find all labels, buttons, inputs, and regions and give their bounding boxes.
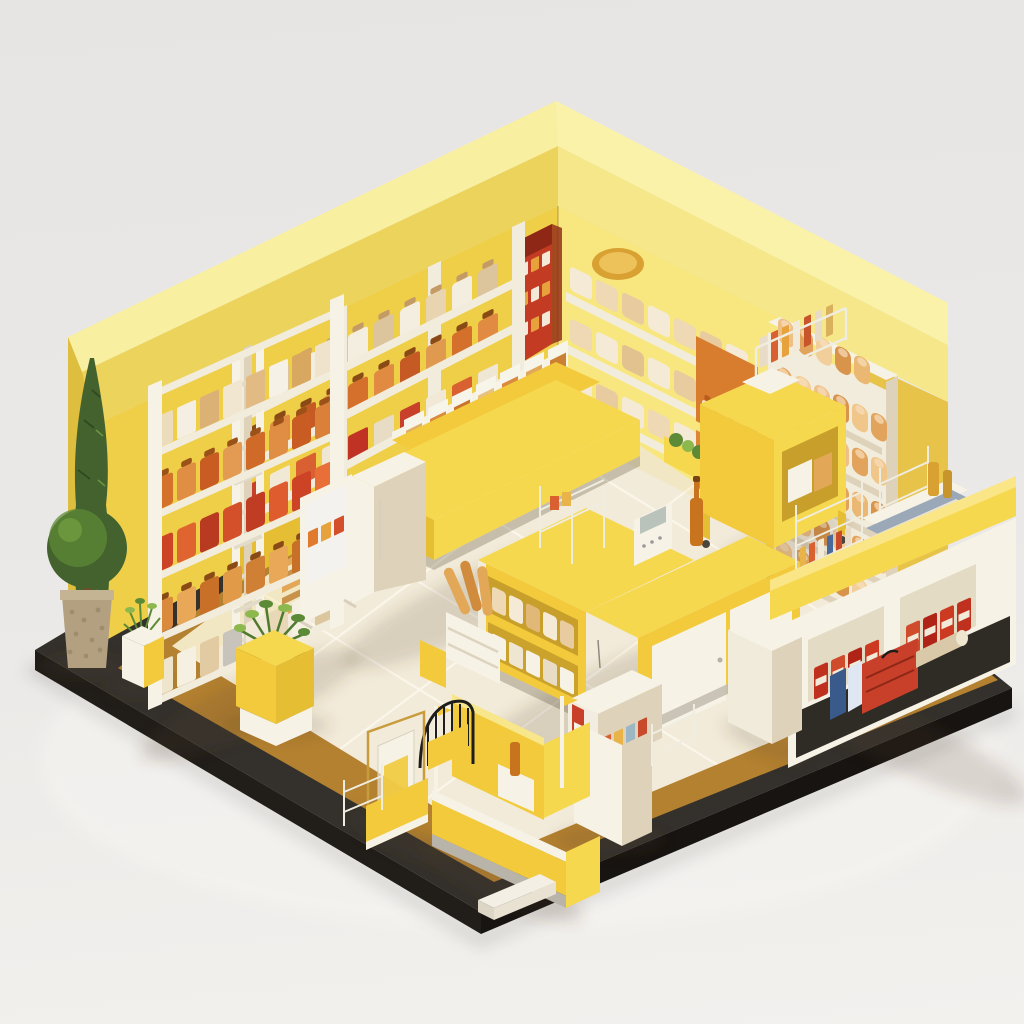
isometric-store-scene bbox=[0, 0, 1024, 1024]
gold-bottle bbox=[928, 462, 939, 496]
fridge-cabinet bbox=[352, 452, 426, 604]
kiosk-post-right bbox=[560, 696, 564, 788]
pillar bbox=[728, 617, 802, 744]
scene-canvas bbox=[0, 0, 1024, 1024]
